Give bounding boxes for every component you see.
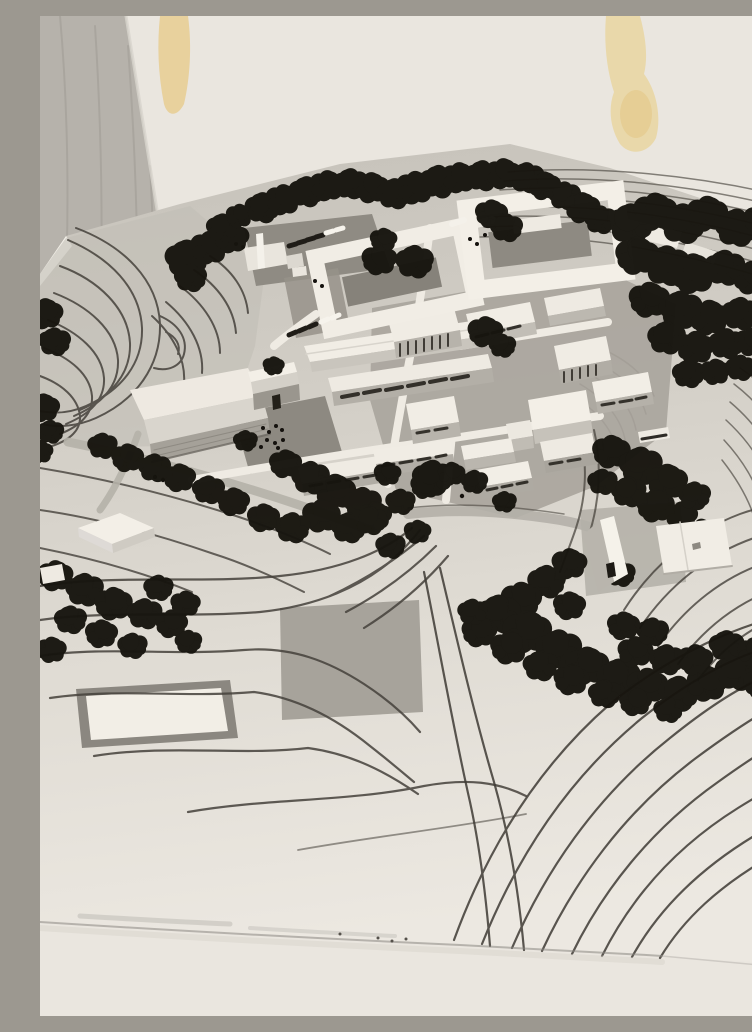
white-van — [452, 220, 464, 224]
architectural-model-photograph — [40, 16, 752, 1016]
white-field — [86, 688, 228, 740]
model-photo-svg — [40, 16, 752, 1016]
gray-field — [280, 600, 423, 720]
gable-house-door — [272, 394, 281, 410]
tape-stain-right-blob — [620, 90, 652, 138]
